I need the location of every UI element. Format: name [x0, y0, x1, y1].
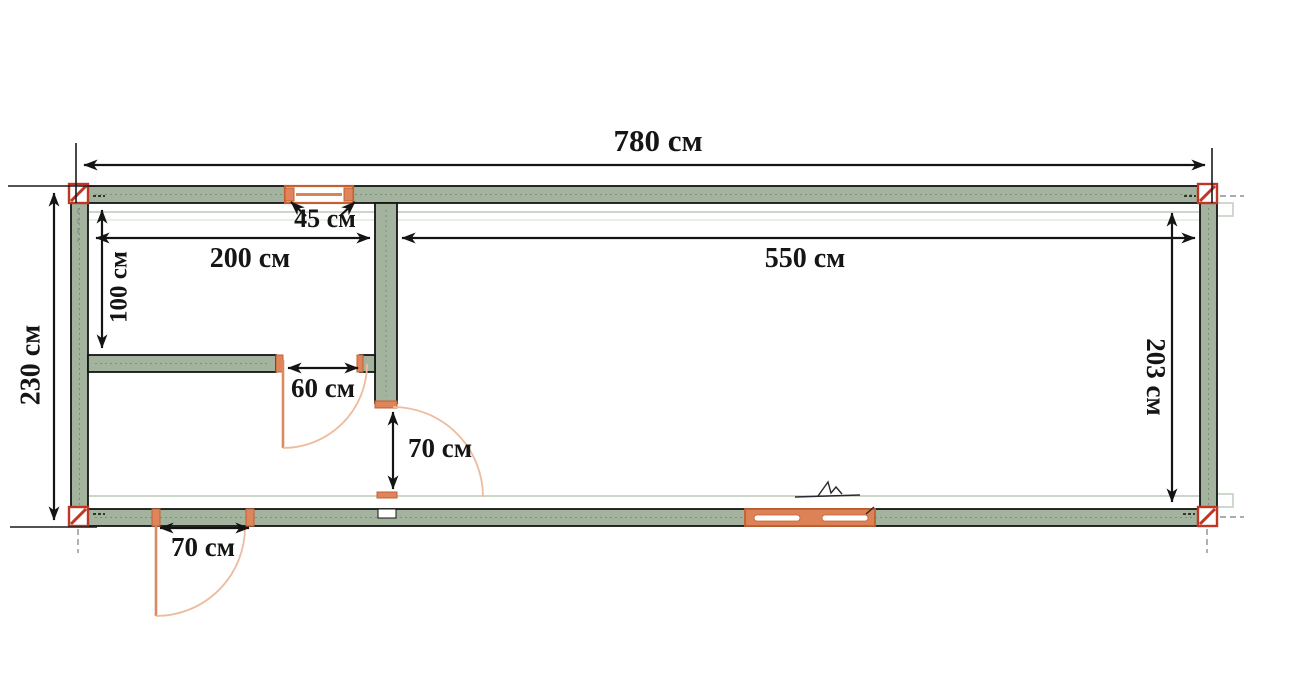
dim-label-left-room-depth: 100 см — [106, 251, 133, 323]
extension-lines — [8, 143, 1244, 553]
dim-total-depth: 230 см — [15, 193, 54, 520]
dim-label-inner-door-70: 70 см — [408, 433, 472, 463]
dim-inner-depth-right: 203 см — [1141, 213, 1172, 502]
dim-inner-door-70: 70 см — [393, 412, 472, 489]
dim-total-width: 780 см — [84, 123, 1205, 165]
dim-main-room-width: 550 см — [402, 238, 1195, 274]
window-bottom — [745, 482, 875, 526]
corner-post-bottom-left — [69, 507, 88, 526]
window-top — [285, 186, 353, 203]
dim-entrance-door-70: 70 см — [160, 528, 249, 562]
panel-tab-top-right — [1217, 203, 1233, 216]
dim-label-total-width: 780 см — [613, 123, 702, 158]
dim-label-inner-door-60: 60 см — [291, 373, 355, 403]
dim-label-entrance-door-70: 70 см — [171, 532, 235, 562]
corner-post-top-right — [1198, 184, 1217, 203]
dim-left-room-width: 200 см — [96, 238, 370, 274]
corner-post-bottom-right — [1198, 507, 1217, 526]
wall-interior-vertical — [375, 203, 397, 403]
panel-tab-bottom-right — [1217, 494, 1233, 507]
dim-inner-door-60: 60 см — [288, 368, 358, 403]
sketch-mark — [795, 482, 860, 497]
corner-post-top-left — [69, 184, 88, 203]
dim-label-top-window: 45 см — [294, 204, 356, 233]
dim-label-total-depth: 230 см — [15, 325, 46, 406]
dim-top-window: 45 см — [291, 202, 356, 233]
floor-plan-drawing: 780 см 230 см 100 см 200 см 550 см 203 с… — [0, 0, 1305, 685]
dim-label-main-room-width: 550 см — [765, 243, 846, 274]
dim-left-room-depth: 100 см — [102, 210, 133, 348]
dim-label-inner-depth-right: 203 см — [1141, 338, 1171, 416]
floor-plan-canvas: 780 см 230 см 100 см 200 см 550 см 203 с… — [0, 0, 1305, 685]
dim-label-left-room-width: 200 см — [210, 243, 291, 274]
